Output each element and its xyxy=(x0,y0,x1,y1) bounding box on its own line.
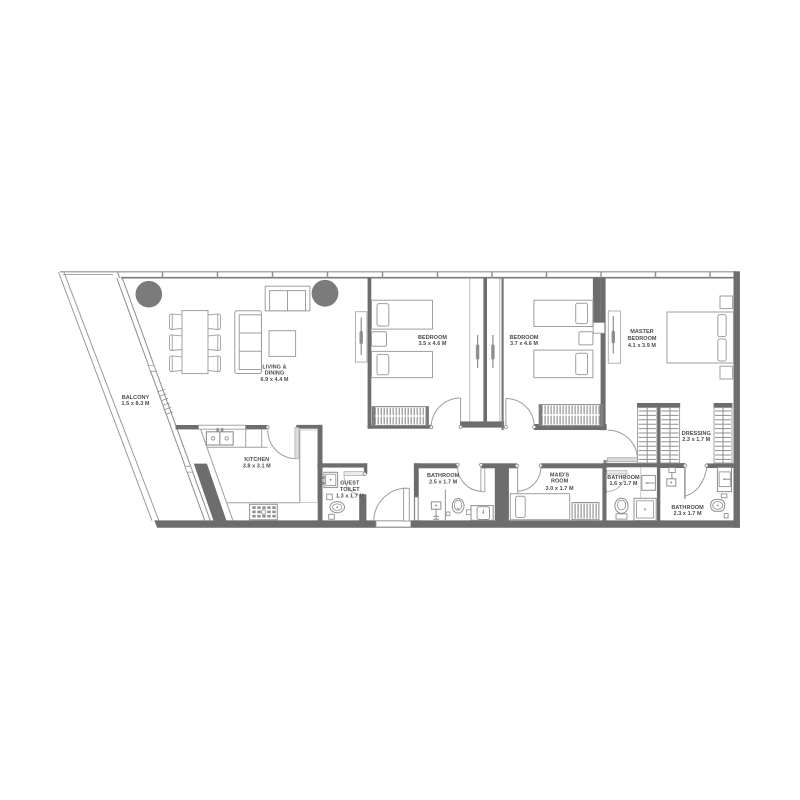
svg-text:2.5 x 1.7 M: 2.5 x 1.7 M xyxy=(429,479,457,485)
svg-text:LIVING &: LIVING & xyxy=(262,365,286,371)
svg-text:TOILET: TOILET xyxy=(340,487,360,493)
svg-text:BEDROOM: BEDROOM xyxy=(627,336,656,342)
svg-text:BATHROOM: BATHROOM xyxy=(427,473,460,479)
svg-text:DRESSING: DRESSING xyxy=(682,431,711,437)
svg-text:6.9 x 4.4 M: 6.9 x 4.4 M xyxy=(260,377,288,383)
svg-text:2.3 x 1.7 M: 2.3 x 1.7 M xyxy=(674,511,702,517)
svg-text:2.3 x 1.7 M: 2.3 x 1.7 M xyxy=(682,437,710,443)
svg-text:MASTER: MASTER xyxy=(630,329,654,335)
svg-text:DINING: DINING xyxy=(265,371,285,377)
svg-text:1.6 x 1.7 M: 1.6 x 1.7 M xyxy=(609,481,637,487)
svg-text:GUEST: GUEST xyxy=(340,480,360,486)
svg-text:ROOM: ROOM xyxy=(551,479,569,485)
svg-text:KITCHEN: KITCHEN xyxy=(244,457,269,463)
svg-text:3.0 x 1.7 M: 3.0 x 1.7 M xyxy=(546,486,574,492)
svg-text:4.1 x 3.9 M: 4.1 x 3.9 M xyxy=(628,343,656,349)
svg-text:3.8 x 3.1 M: 3.8 x 3.1 M xyxy=(243,463,271,469)
svg-text:1.3 x 1.7 M: 1.3 x 1.7 M xyxy=(336,493,364,499)
svg-text:BATHROOM: BATHROOM xyxy=(671,505,704,511)
svg-text:3.7 x 4.6 M: 3.7 x 4.6 M xyxy=(510,341,538,347)
svg-text:1.5 x 8.3 M: 1.5 x 8.3 M xyxy=(121,401,149,407)
svg-text:3.5 x 4.6 M: 3.5 x 4.6 M xyxy=(418,341,446,347)
